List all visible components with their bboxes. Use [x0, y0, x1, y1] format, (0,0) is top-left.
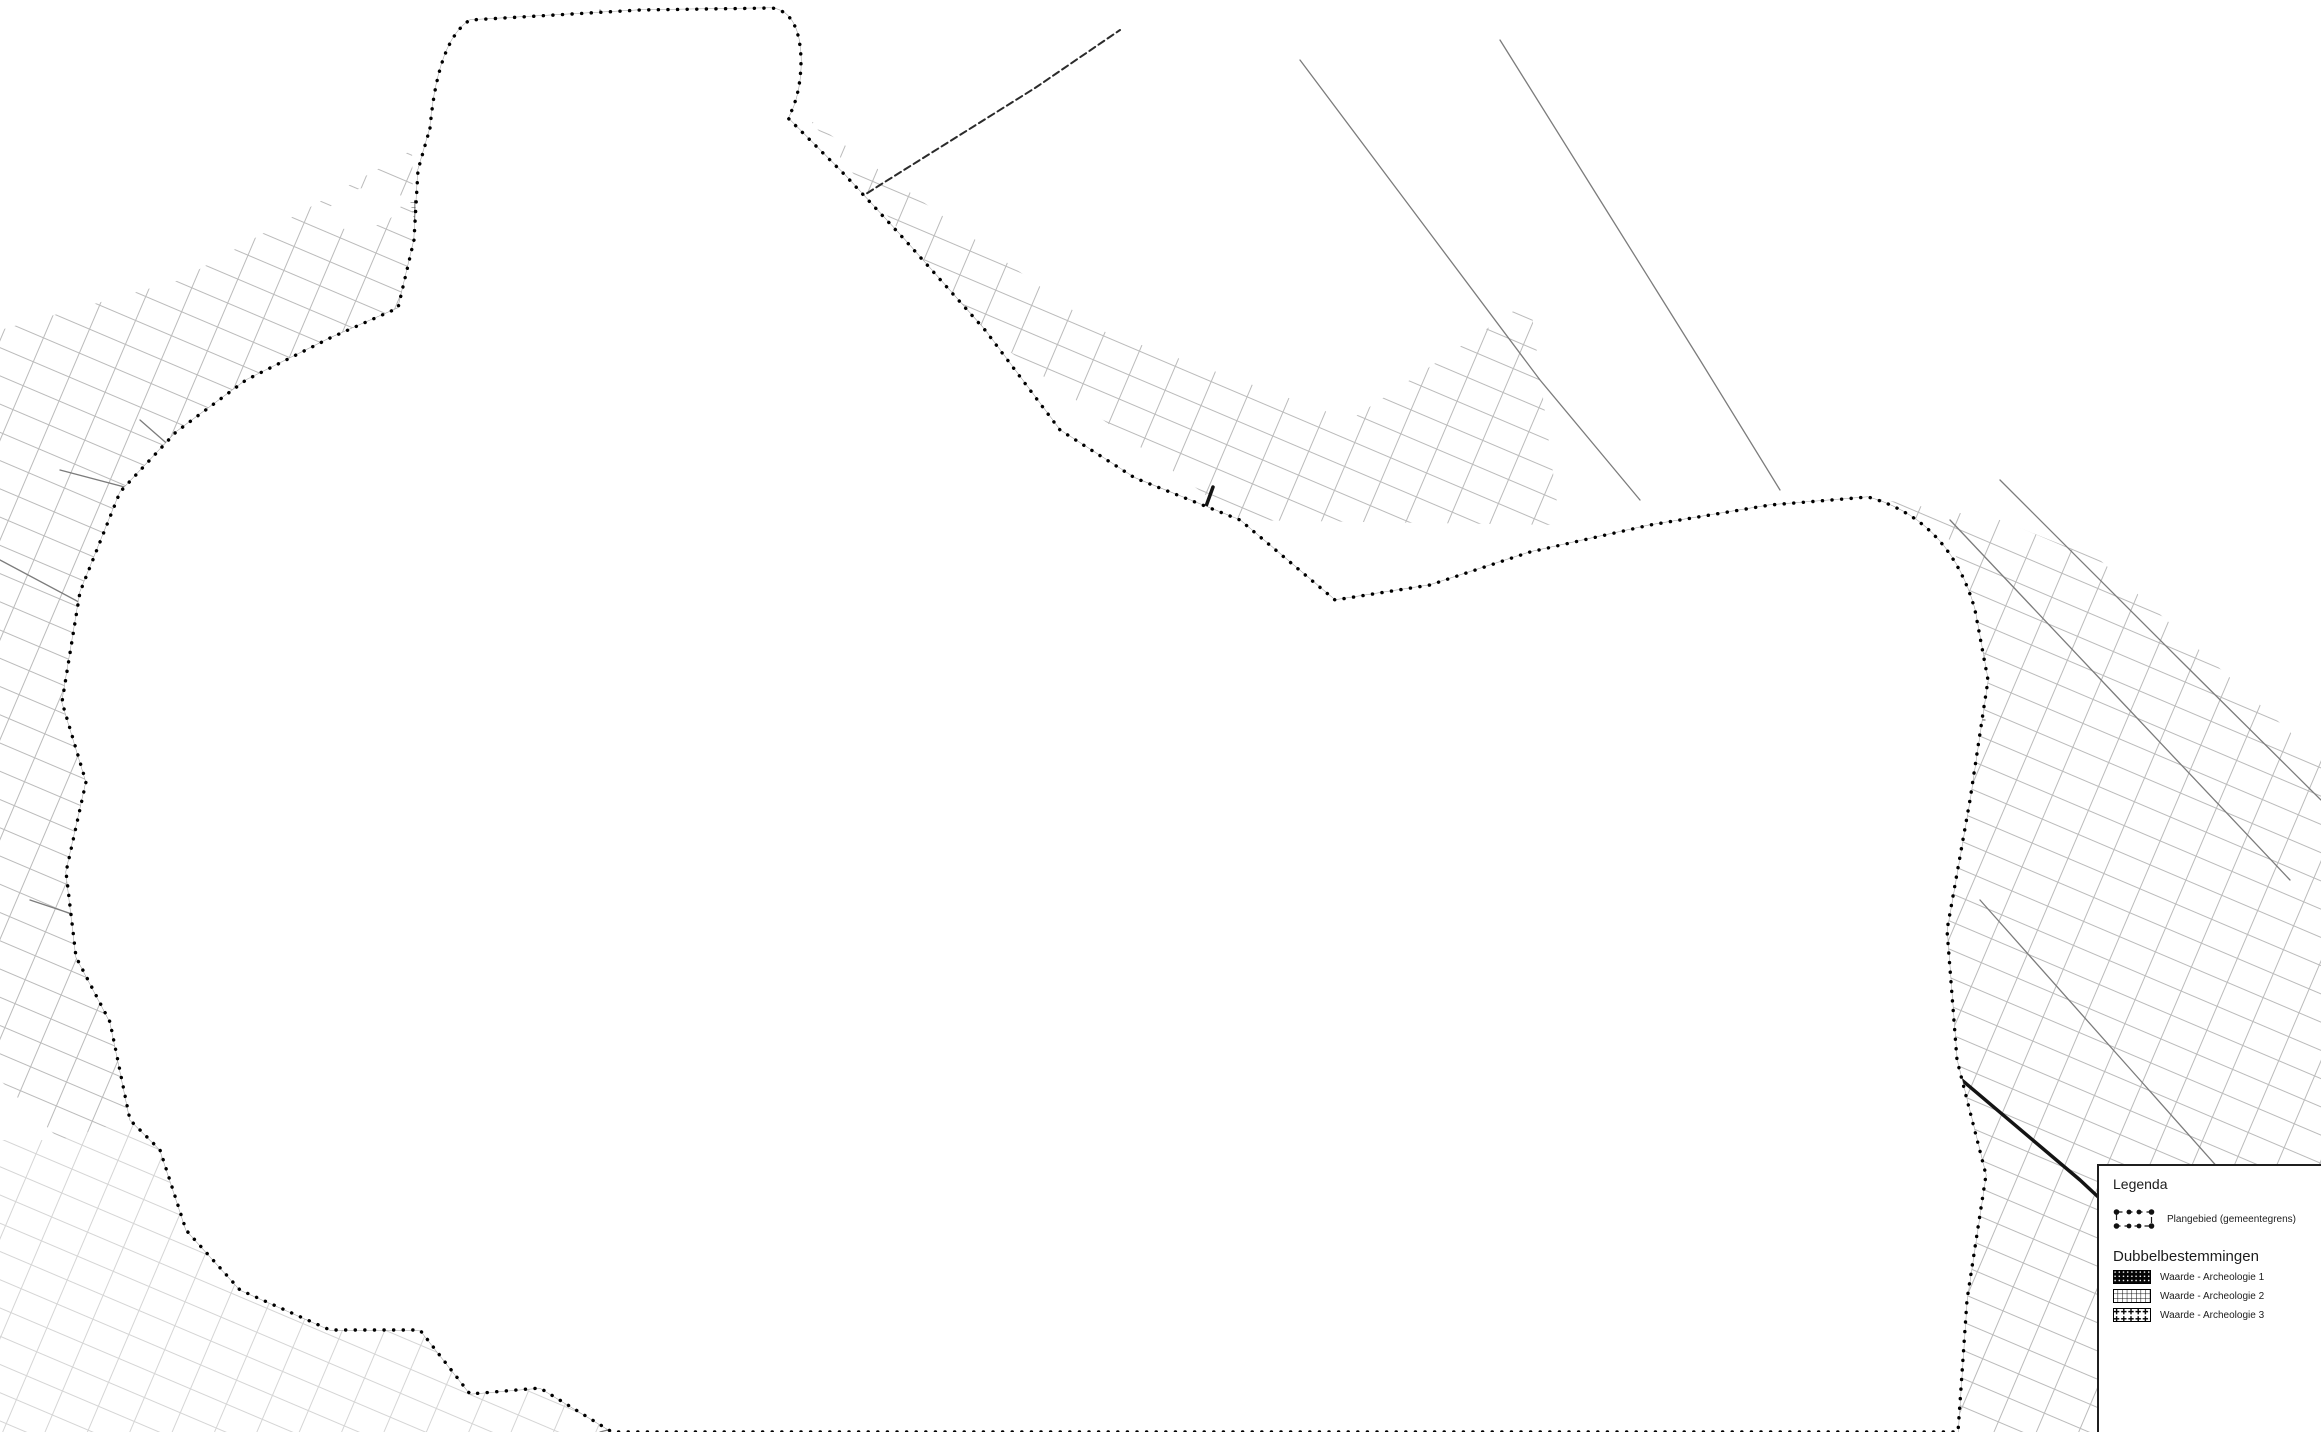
plangebied-label: Plangebied (gemeentegrens) [2167, 1214, 2296, 1225]
legend-item-waarde-archeologie-3: Waarde - Archeologie 3 [2113, 1308, 2321, 1322]
legend-panel: Legenda Plangebied (gemeentegrens) Dubbe… [2097, 1164, 2321, 1432]
legend-item-waarde-archeologie-2: Waarde - Archeologie 2 [2113, 1289, 2321, 1303]
plangebied-boundary-symbol-icon [2113, 1207, 2155, 1231]
waarde-archeologie-2-swatch-icon [2113, 1289, 2151, 1303]
waarde-archeologie-3-label: Waarde - Archeologie 3 [2160, 1310, 2264, 1321]
waarde-archeologie-2-label: Waarde - Archeologie 2 [2160, 1291, 2264, 1302]
waarde-archeologie-1-label: Waarde - Archeologie 1 [2160, 1272, 2264, 1283]
map-canvas [0, 0, 2321, 1432]
legend-section-title: Dubbelbestemmingen [2113, 1248, 2321, 1265]
waarde-archeologie-1-swatch-icon [2113, 1270, 2151, 1284]
waarde-archeologie-3-swatch-icon [2113, 1308, 2151, 1322]
legend-row-plangebied: Plangebied (gemeentegrens) [2113, 1207, 2321, 1231]
legend-item-waarde-archeologie-1: Waarde - Archeologie 1 [2113, 1270, 2321, 1284]
legend-title: Legenda [2113, 1176, 2321, 1192]
map-page: Legenda Plangebied (gemeentegrens) Dubbe… [0, 0, 2321, 1432]
